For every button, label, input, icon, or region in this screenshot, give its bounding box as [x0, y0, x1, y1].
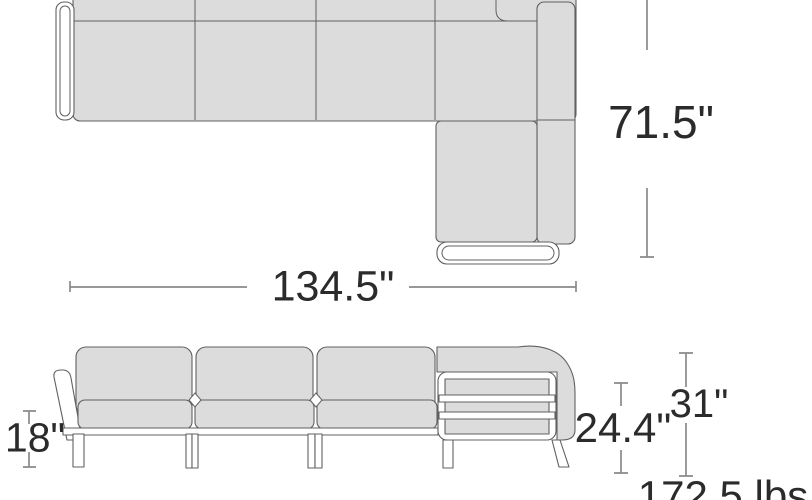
front-view-leg-mid2a [308, 434, 315, 468]
top-view-chaise-armrest [437, 242, 559, 264]
front-view-seat-cushion-2 [195, 400, 314, 429]
top-view-chaise-column [537, 2, 575, 244]
front-view [54, 346, 575, 468]
front-view-chaise-panel-opening [445, 379, 549, 434]
front-view-leg-mid1b [192, 434, 198, 468]
dimension-weight-label: 172.5 lbs [638, 475, 808, 500]
front-view-chaise-leg-right [552, 440, 569, 467]
front-view-frame-rail [63, 428, 438, 435]
dimension-seat-height-label: 18" [5, 418, 65, 459]
top-view-main-body [73, 0, 576, 121]
dimension-diagram: 71.5" 134.5" 18" 24.4" 31" 172.5 lbs [0, 0, 812, 500]
front-view-chaise-rail-2 [439, 412, 555, 419]
top-view [56, 0, 576, 264]
front-view-seat-cushion-1 [78, 400, 192, 429]
front-view-leg-mid1a [186, 434, 192, 468]
front-view-chaise-rail-1 [439, 395, 555, 402]
front-view-chaise-leg-left [443, 440, 453, 468]
front-view-seat-cushion-3 [317, 400, 437, 429]
top-view-left-armrest [56, 2, 74, 120]
dimension-depth-label: 71.5" [608, 99, 714, 145]
dimension-width-label: 134.5" [272, 266, 395, 309]
dimension-overall-height-label: 31" [670, 384, 729, 424]
front-view-leg-left [73, 434, 84, 467]
front-view-leg-mid2b [315, 434, 322, 468]
dimension-arm-height-label: 24.4" [575, 407, 672, 449]
top-view-chaise-seat [436, 121, 537, 242]
